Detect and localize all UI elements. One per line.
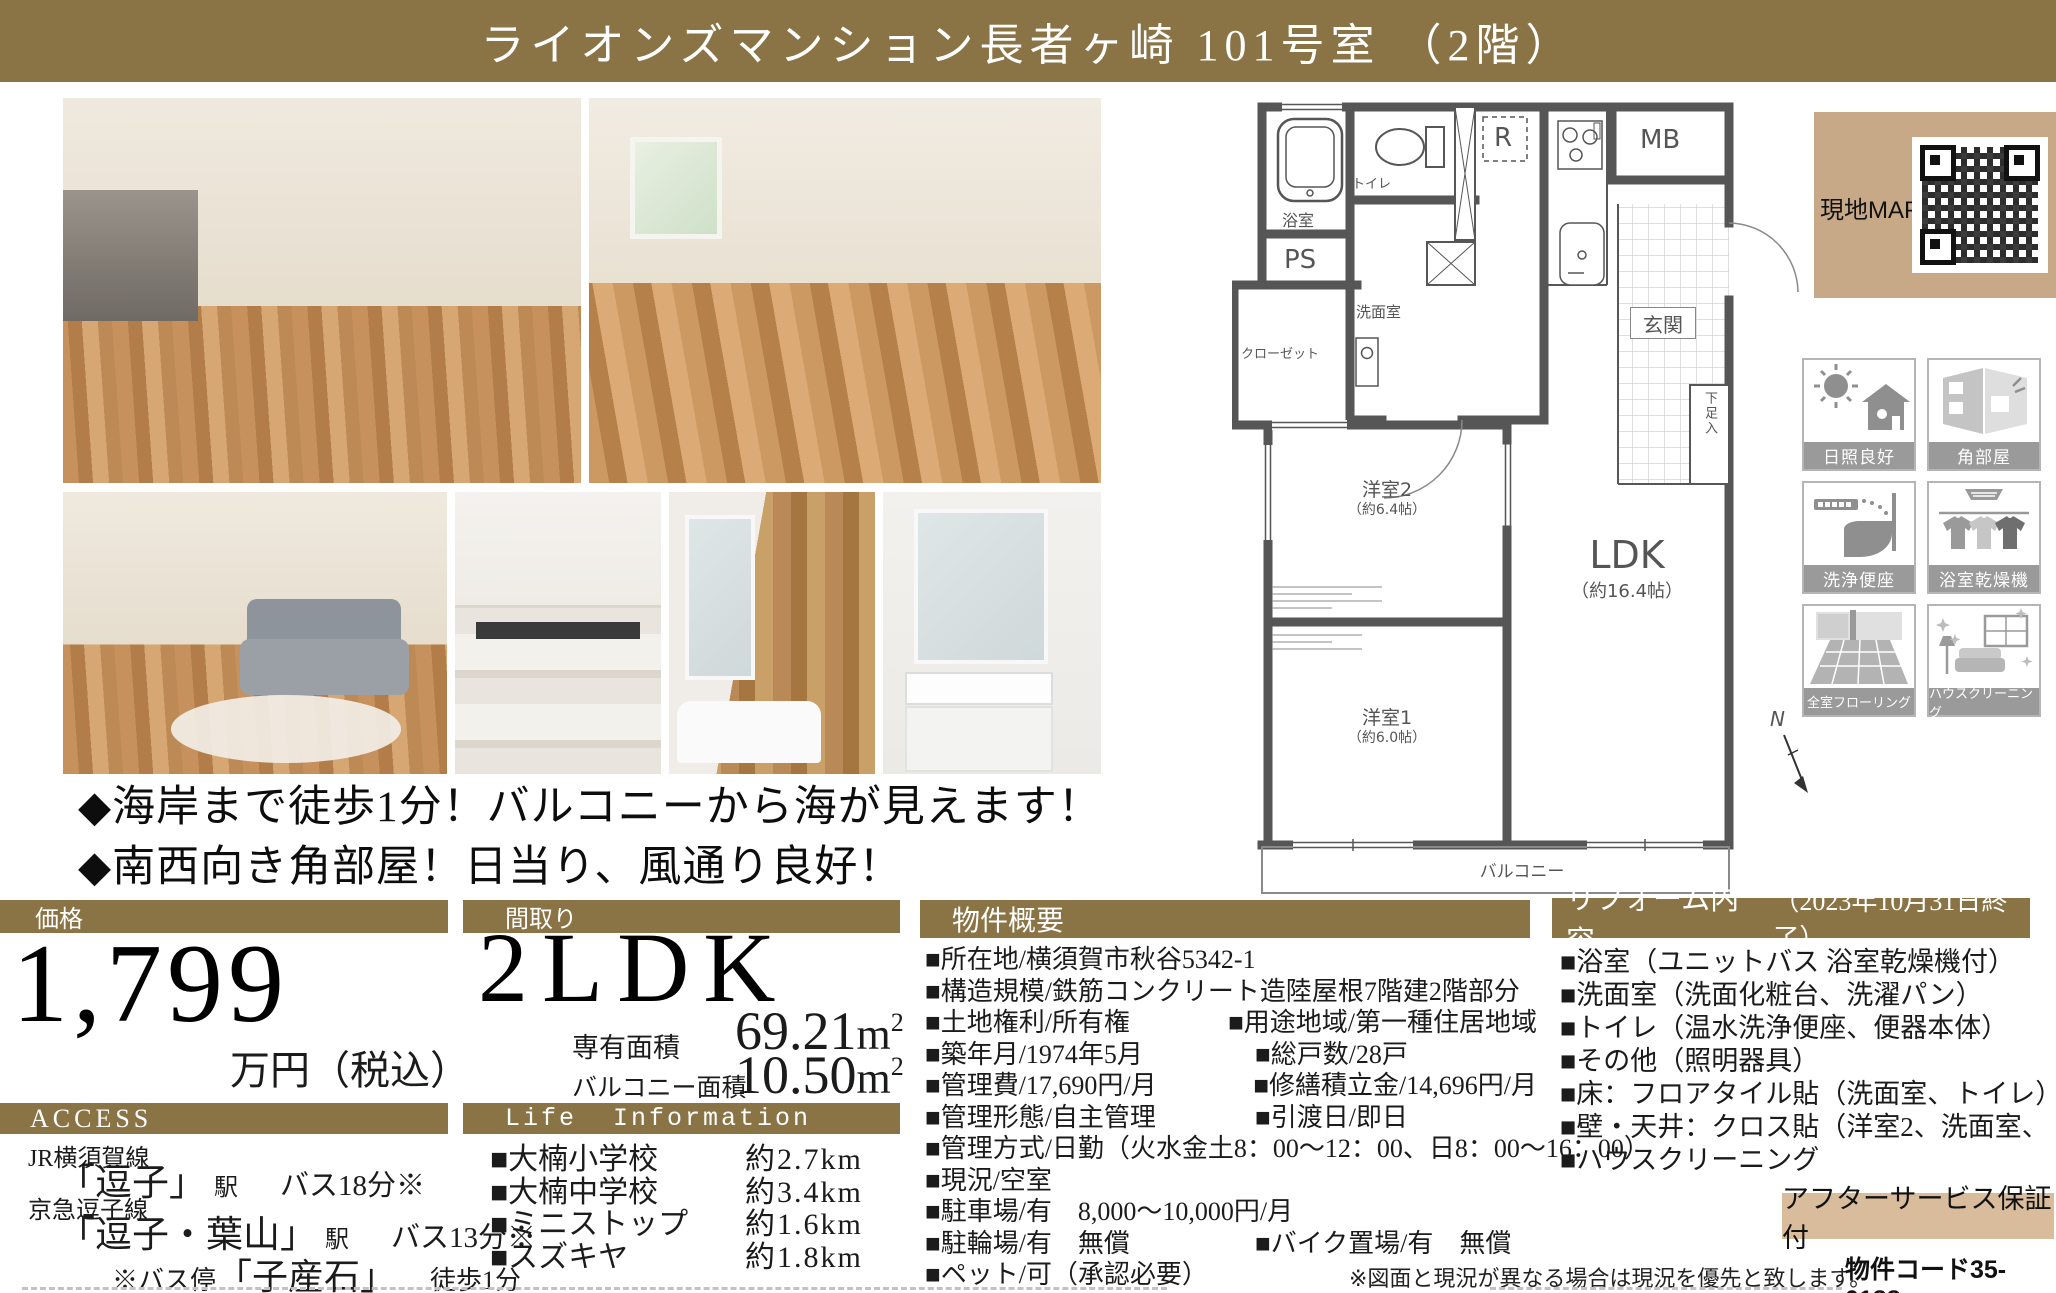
feature-label: ハウスクリーニング [1929,688,2039,715]
flooring-icon [1804,606,1914,688]
outline-cell: ■バイク置場/有 無償 [1255,1228,1511,1260]
sofa-shape [240,639,409,695]
feature-corner-room: 角部屋 [1927,358,2041,471]
feature-house-cleaning: ハウスクリーニング [1927,604,2041,717]
basin-icon [1356,338,1378,386]
life-info-row: ■スズキヤ約1.8km [490,1242,863,1275]
outline-cell: ■駐輪場/有 無償 [925,1228,1255,1260]
window-shape [630,137,722,239]
label-meter-box: MB [1640,125,1680,155]
outline-cell: ■所在地/横須賀市秋谷5342-1 [925,944,1256,976]
photo-vanity [883,492,1101,774]
outline-list: ■所在地/横須賀市秋谷5342-1 ■構造規模/鉄筋コンクリート造陸屋根7階建2… [925,944,1537,1291]
label-bedroom2: 洋室2 [1292,475,1482,502]
reform-header-note: （2023年10月31日終了） [1747,881,2030,955]
label-ldk-size: （約16.4帖） [1552,577,1702,603]
bath-mirror-shape [685,515,755,681]
kitchen-sink-icon [1560,223,1604,285]
label-bedroom1: 洋室1 [1292,703,1482,730]
reform-item: ■洗面室（洗面化粧台、洗濯パン） [1560,979,2050,1012]
life-info-header: Life Information [463,1104,811,1133]
outline-row: ■築年月/1974年5月■総戸数/28戸 [925,1039,1537,1071]
toilet-icon [1376,127,1444,167]
outline-row: ■構造規模/鉄筋コンクリート造陸屋根7階建2階部分 [925,976,1537,1008]
divider-dashed-right [1490,1287,1842,1290]
feature-flooring: 全室フローリング [1802,604,1916,717]
shaft-icon [1455,107,1475,240]
sofa-back-shape [247,599,401,644]
outline-cell: ■引渡日/即日 [1255,1102,1408,1134]
rug-shape [171,695,401,763]
reform-header-bar: リフォーム内容 （2023年10月31日終了） [1552,898,2030,938]
outline-cell: ■管理方式/日勤（火水金土8：00～12：00、日8：00～16：00） [925,1133,1650,1165]
compass-arrow [1784,735,1808,793]
balcony-value-row: 10.50m2 [735,1048,904,1104]
vanity-cabinet-shape [905,706,1053,772]
floor-plan: 浴室 トイレ R MB PS 洗面室 クローゼット 玄関 下足入 洋室2 （約6… [1232,95,1812,905]
life-place: ■スズキヤ [490,1242,745,1275]
reform-item: ■壁・天井：クロス貼（洋室2、洗面室、トイレ） [1560,1111,2050,1144]
label-shoe-box: 下足入 [1700,391,1719,477]
access-station-suffix-1: 駅 [214,1175,238,1201]
outline-cell: ■土地権利/所有権 [925,1007,1228,1039]
compass-n-label: N [1770,707,1785,731]
stove-icon [1558,121,1602,169]
outline-header-bar: 物件概要 [920,900,1530,938]
life-distance: 約3.4km [745,1177,863,1210]
life-distance: 約1.8km [745,1242,863,1275]
outline-cell: ■ペット/可（承認必要） [925,1259,1208,1291]
bath-dryer-icon [1929,483,2039,565]
reform-item: ■トイレ（温水洗浄便座、便器本体） [1560,1012,2050,1045]
photo-bathroom [669,492,875,774]
washer-pan-icon [1427,242,1475,285]
feature-sunshine: 日照良好 [1802,358,1916,471]
balcony-area-value: 10.50 [735,1045,857,1105]
bathtub-icon [1278,119,1342,201]
sunshine-icon [1804,360,1914,442]
life-info-row: ■ミニストップ約1.6km [490,1209,863,1242]
outline-row: ■土地権利/所有権■用途地域/第一種住居地域 [925,1007,1537,1039]
outline-row: ■管理方式/日勤（火水金土8：00～12：00、日8：00～16：00） [925,1133,1537,1165]
access-header: ACCESS [0,1104,152,1134]
label-ldk: LDK [1552,533,1702,577]
outline-row: ■現況/空室 [925,1165,1537,1197]
outline-cell: ■管理形態/自主管理 [925,1102,1255,1134]
feature-label: 角部屋 [1929,442,2039,469]
label-closet: クローゼット [1241,343,1319,362]
price-unit: 万円（税込） [230,1038,470,1096]
life-info-row: ■大楠中学校約3.4km [490,1177,863,1210]
outline-row: ■駐車場/有 8,000～10,000円/月 [925,1196,1537,1228]
access-note-1: バス18分※ [280,1170,425,1202]
feature-label: 洗浄便座 [1804,565,1914,592]
vanity-mirror-shape [914,509,1048,664]
label-bath: 浴室 [1282,207,1314,231]
balcony-area-label: バルコニー面積 [572,1068,747,1104]
bathtub-shape [677,701,821,763]
outline-cell: ■管理費/17,690円/月 [925,1070,1253,1102]
photo-living-sofa [63,492,447,774]
feature-washlet: 洗浄便座 [1802,481,1916,594]
catch-copy-line1: ◆海岸まで徒歩1分！バルコニーから海が見えます！ [78,772,1178,834]
outline-header: 物件概要 [920,899,1064,939]
outline-cell: ■修繕積立金/14,696円/月 [1253,1070,1537,1102]
divider-dashed-left [22,1287,1167,1290]
life-info-row: ■大楠小学校約2.7km [490,1144,863,1177]
access-header-bar: ACCESS [0,1103,448,1134]
price-amount: 1,799 [12,928,289,1040]
qr-finder-icon [1920,145,1956,181]
outline-row: ■駐輪場/有 無償■バイク置場/有 無償 [925,1228,1537,1260]
label-refrigerator: R [1494,123,1512,153]
after-service-badge: アフターサービス保証付 [1782,1193,2054,1239]
page-title: ライオンズマンション長者ヶ崎 101号室 （2階） [480,9,1575,73]
life-distance: 約1.6km [745,1209,863,1242]
house-cleaning-icon [1929,606,2039,688]
feature-label: 日照良好 [1804,442,1914,469]
life-info-list: ■大楠小学校約2.7km ■大楠中学校約3.4km ■ミニストップ約1.6km … [490,1144,863,1274]
life-distance: 約2.7km [745,1144,863,1177]
map-label: 現地MAP [1820,190,1920,225]
feature-label: 浴室乾燥機 [1929,565,2039,592]
qr-code [1912,137,2048,273]
label-bedroom1-size: （約6.0帖） [1292,727,1482,747]
outline-cell: ■構造規模/鉄筋コンクリート造陸屋根7階建2階部分 [925,976,1520,1008]
reform-item: ■その他（照明器具） [1560,1045,2050,1078]
outline-row: ■所在地/横須賀市秋谷5342-1 [925,944,1537,976]
photo-empty-room [589,98,1101,483]
qr-finder-icon [2004,145,2040,181]
outline-cell: ■現況/空室 [925,1165,1052,1197]
outline-row: ■管理費/17,690円/月■修繕積立金/14,696円/月 [925,1070,1537,1102]
qr-finder-icon [1920,229,1956,265]
area-unit-sup: 2 [891,1008,904,1037]
reform-item: ■ハウスクリーニング [1560,1144,2050,1177]
reform-list: ■浴室（ユニットバス 浴室乾燥機付） ■洗面室（洗面化粧台、洗濯パン） ■トイレ… [1560,946,2050,1177]
outline-cell: ■用途地域/第一種住居地域 [1228,1007,1537,1039]
map-panel: 現地MAP [1814,112,2056,298]
vanity-sink-shape [905,672,1053,704]
corner-room-icon [1929,360,2039,442]
life-place: ■大楠中学校 [490,1177,745,1210]
label-toilet: トイレ [1352,173,1391,192]
photo-kitchen [455,492,661,774]
stove-shape [476,622,641,639]
outline-cell: ■総戸数/28戸 [1255,1039,1408,1071]
accent-wall [63,190,198,321]
reform-item: ■床：フロアタイル貼（洗面室、トイレ） [1560,1078,2050,1111]
outline-cell: ■築年月/1974年5月 [925,1039,1255,1071]
balcony-unit: m [857,1054,891,1103]
washlet-icon [1804,483,1914,565]
catch-copy-line2: ◆南西向き角部屋！日当り、風通り良好！ [78,832,1178,894]
feature-label: 全室フローリング [1804,688,1914,715]
outline-cell: ■駐車場/有 8,000～10,000円/月 [925,1196,1293,1228]
property-code: 物件コード35-0188 [1845,1250,2056,1293]
reform-item: ■浴室（ユニットバス 浴室乾燥機付） [1560,946,2050,979]
life-place: ■大楠小学校 [490,1144,745,1177]
outline-row: ■管理形態/自主管理■引渡日/即日 [925,1102,1537,1134]
feature-bath-dryer: 浴室乾燥機 [1927,481,2041,594]
life-place: ■ミニストップ [490,1209,745,1242]
label-entrance: 玄関 [1630,307,1696,339]
label-pipe-space: PS [1284,245,1316,275]
label-bedroom2-size: （約6.4帖） [1292,499,1482,519]
label-washroom: 洗面室 [1356,301,1401,322]
flyer-page: ライオンズマンション長者ヶ崎 101号室 （2階） ◆海岸まで徒歩1分！バルコニ… [0,0,2056,1293]
balcony-unit-sup: 2 [891,1052,904,1081]
title-bar: ライオンズマンション長者ヶ崎 101号室 （2階） [0,0,2056,82]
area-label: 専有面積 [572,1026,680,1065]
life-info-header-bar: Life Information [463,1103,900,1134]
photo-living-dining [63,98,581,483]
